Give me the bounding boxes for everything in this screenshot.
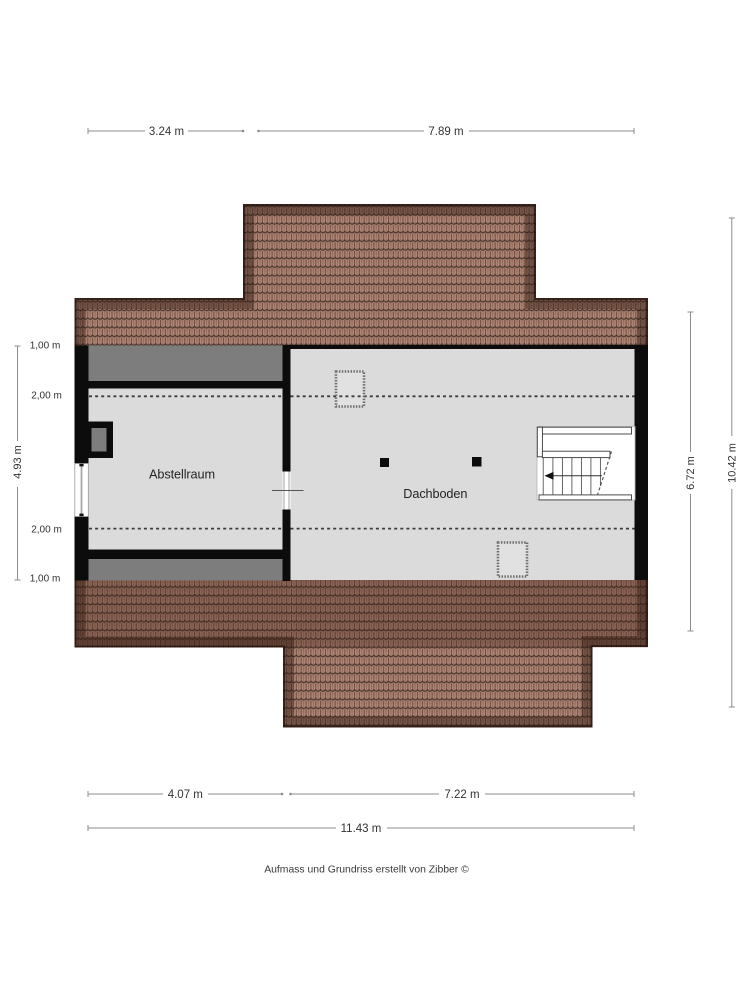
svg-text:7.22 m: 7.22 m xyxy=(444,789,479,801)
svg-text:3.24 m: 3.24 m xyxy=(149,126,184,138)
svg-text:11.43 m: 11.43 m xyxy=(341,823,382,835)
svg-text:2,00 m: 2,00 m xyxy=(31,525,62,536)
svg-text:1,00 m: 1,00 m xyxy=(30,341,61,352)
svg-text:1,00 m: 1,00 m xyxy=(30,574,61,585)
svg-text:Aufmass und Grundriss erstellt: Aufmass und Grundriss erstellt von Zibbe… xyxy=(264,865,469,876)
svg-text:Abstellraum: Abstellraum xyxy=(149,468,215,482)
svg-text:4.93 m: 4.93 m xyxy=(12,445,24,479)
svg-text:2,00 m: 2,00 m xyxy=(31,391,62,402)
svg-text:10.42 m: 10.42 m xyxy=(727,443,739,483)
svg-text:4.07 m: 4.07 m xyxy=(168,789,203,801)
svg-text:7.89 m: 7.89 m xyxy=(428,126,463,138)
svg-text:Dachboden: Dachboden xyxy=(403,487,467,501)
svg-text:6.72 m: 6.72 m xyxy=(685,456,697,490)
